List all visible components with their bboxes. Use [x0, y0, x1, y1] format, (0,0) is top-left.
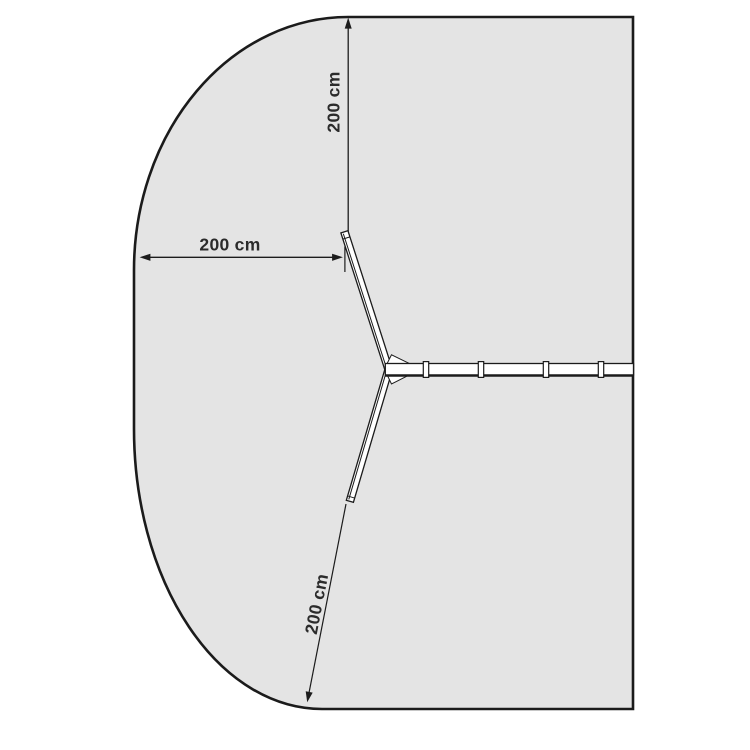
dimension-label-left: 200 cm: [199, 235, 260, 256]
beam-coupling-3: [543, 362, 548, 378]
dimension-label-top: 200 cm: [324, 71, 345, 132]
diagram-canvas: 200 cm 200 cm 200 cm: [0, 0, 750, 750]
beam-coupling-1: [423, 362, 428, 378]
swing-beam: [385, 364, 633, 375]
beam-coupling-2: [478, 362, 483, 378]
beam-coupling-4: [598, 362, 603, 378]
swing-safety-zone-drawing: [0, 0, 750, 750]
